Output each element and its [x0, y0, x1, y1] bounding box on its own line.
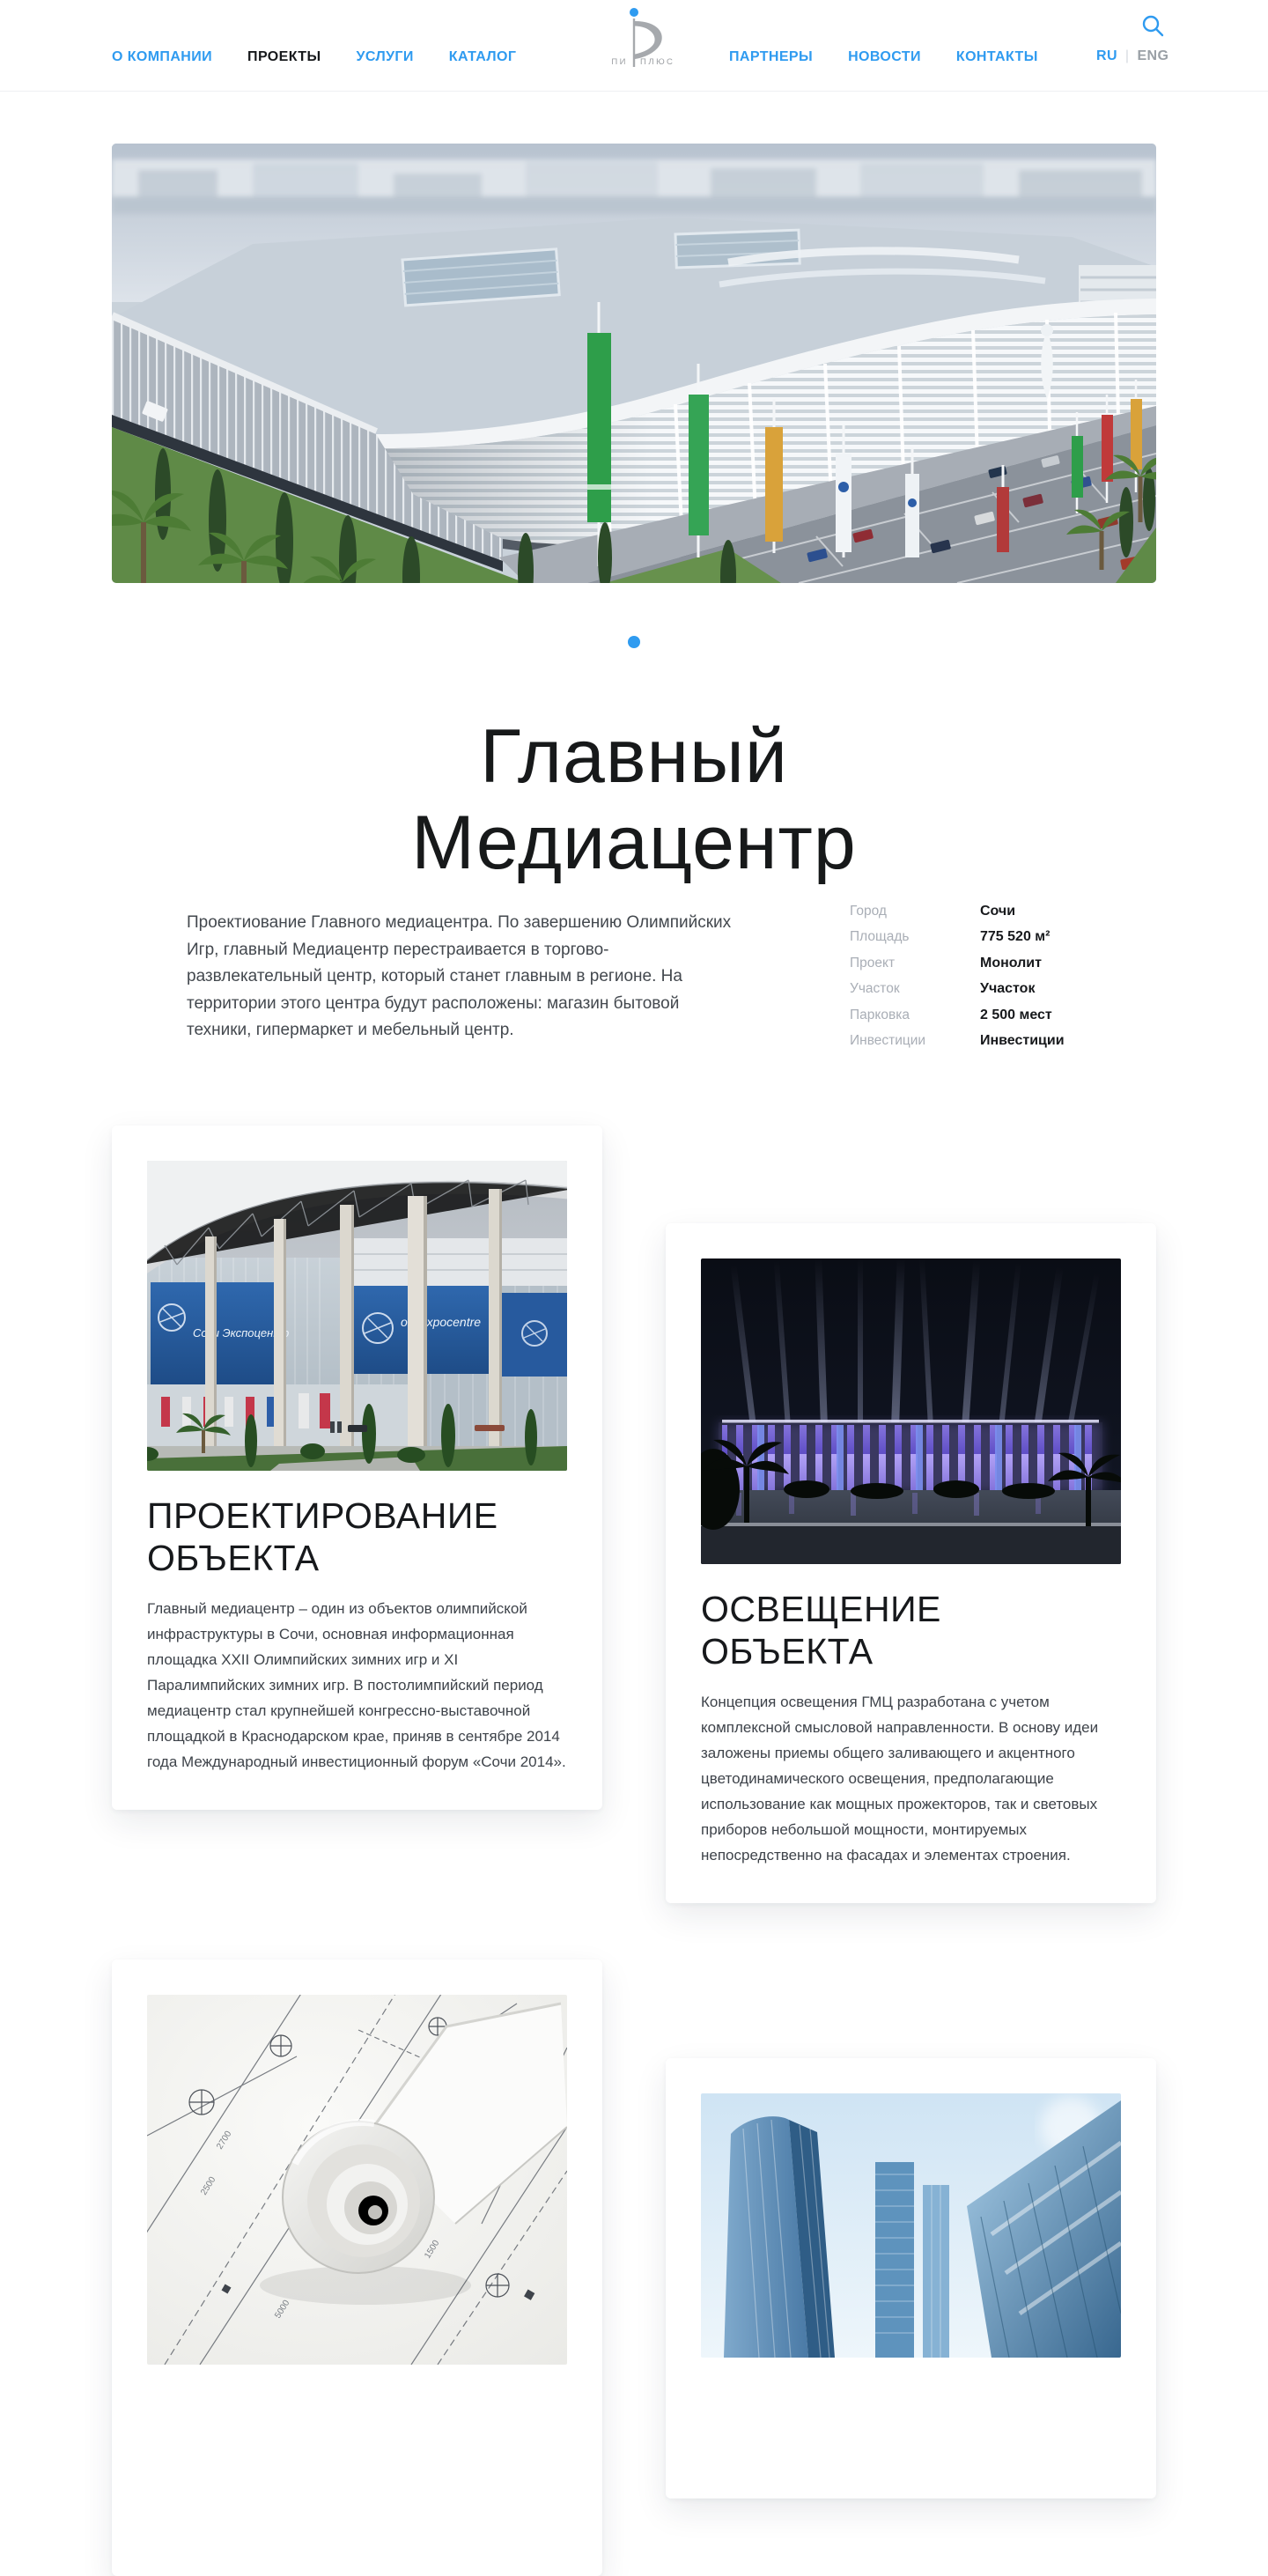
page-title: Главный Медиацентр [326, 713, 942, 886]
nav-item-about[interactable]: О КОМПАНИИ [112, 49, 212, 65]
media-center-render [112, 144, 1156, 583]
fact-label: Парковка [850, 1008, 980, 1023]
fact-label: Проект [850, 956, 980, 971]
fact-label: Инвестиции [850, 1033, 980, 1049]
card-lighting: ОСВЕЩЕНИЕ ОБЪЕКТА Концепция освещения ГМ… [666, 1223, 1156, 1903]
search-button[interactable] [1140, 13, 1165, 38]
fact-value: 775 520 м² [980, 929, 1050, 945]
fact-row-area: Площадь 775 520 м² [850, 925, 1167, 951]
card-body: Главный медиацентр – один из объектов ол… [147, 1596, 567, 1775]
card-towers [666, 2058, 1156, 2498]
accent-dot [628, 636, 640, 648]
blueprint-photo: 2700 2500 5000 1500 [147, 1995, 567, 2365]
nav-item-services[interactable]: УСЛУГИ [357, 49, 414, 65]
fact-label: Участок [850, 981, 980, 997]
fact-row-city: Город Сочи [850, 898, 1167, 925]
nav-right-group: ПАРТНЕРЫ НОВОСТИ КОНТАКТЫ [729, 49, 1038, 65]
fact-row-project: Проект Монолит [850, 950, 1167, 977]
search-icon [1140, 13, 1165, 38]
skyscrapers-photo [701, 2093, 1121, 2358]
night-lighting-photo [701, 1258, 1121, 1564]
fact-label: Город [850, 904, 980, 919]
card-body: Концепция освещения ГМЦ разработана с уч… [701, 1689, 1121, 1868]
lang-divider: | [1125, 48, 1130, 64]
fact-row-site: Участок Участок [850, 977, 1167, 1003]
lang-ru[interactable]: RU [1096, 48, 1117, 64]
logo-text-right: ПЛЮС [640, 57, 675, 67]
fact-value: Инвестиции [980, 1033, 1065, 1049]
card-design: Сочи Экспоцентр ochi xpocentre [112, 1126, 602, 1810]
fact-row-parking: Парковка 2 500 мест [850, 1002, 1167, 1029]
fact-row-investments: Инвестиции Инвестиции [850, 1029, 1167, 1055]
language-switcher: RU | ENG [1096, 48, 1168, 64]
fact-value: Сочи [980, 904, 1015, 919]
expocentre-photo: Сочи Экспоцентр ochi xpocentre [147, 1161, 567, 1471]
project-description: Проектиование Главного медиацентра. По з… [187, 910, 740, 1044]
fact-value: Монолит [980, 956, 1042, 971]
nav-item-contacts[interactable]: КОНТАКТЫ [956, 49, 1038, 65]
logo-mark-icon: ПИ ПЛЮС [577, 4, 691, 67]
logo-text-left: ПИ [611, 57, 628, 67]
card-blueprint: 2700 2500 5000 1500 [112, 1960, 602, 2576]
lang-eng[interactable]: ENG [1137, 48, 1168, 64]
nav-item-news[interactable]: НОВОСТИ [848, 49, 921, 65]
project-page: { "nav": { "left": [ {"label": "О КОМПАН… [0, 0, 1268, 2170]
fact-label: Площадь [850, 929, 980, 945]
company-logo[interactable]: ПИ ПЛЮС [577, 4, 691, 67]
card-title: ОСВЕЩЕНИЕ ОБЪЕКТА [701, 1588, 1121, 1672]
nav-item-catalog[interactable]: КАТАЛОГ [449, 49, 517, 65]
hero-image [112, 144, 1156, 583]
fact-value: Участок [980, 981, 1035, 997]
top-navigation-bar: О КОМПАНИИ ПРОЕКТЫ УСЛУГИ КАТАЛОГ ПИ ПЛЮ… [0, 0, 1268, 92]
nav-left-group: О КОМПАНИИ ПРОЕКТЫ УСЛУГИ КАТАЛОГ [112, 49, 516, 65]
nav-item-partners[interactable]: ПАРТНЕРЫ [729, 49, 813, 65]
fact-value: 2 500 мест [980, 1008, 1052, 1023]
nav-item-projects[interactable]: ПРОЕКТЫ [247, 49, 321, 65]
card-title: ПРОЕКТИРОВАНИЕ ОБЪЕКТА [147, 1495, 567, 1579]
project-facts: Город Сочи Площадь 775 520 м² Проект Мон… [850, 898, 1167, 1054]
